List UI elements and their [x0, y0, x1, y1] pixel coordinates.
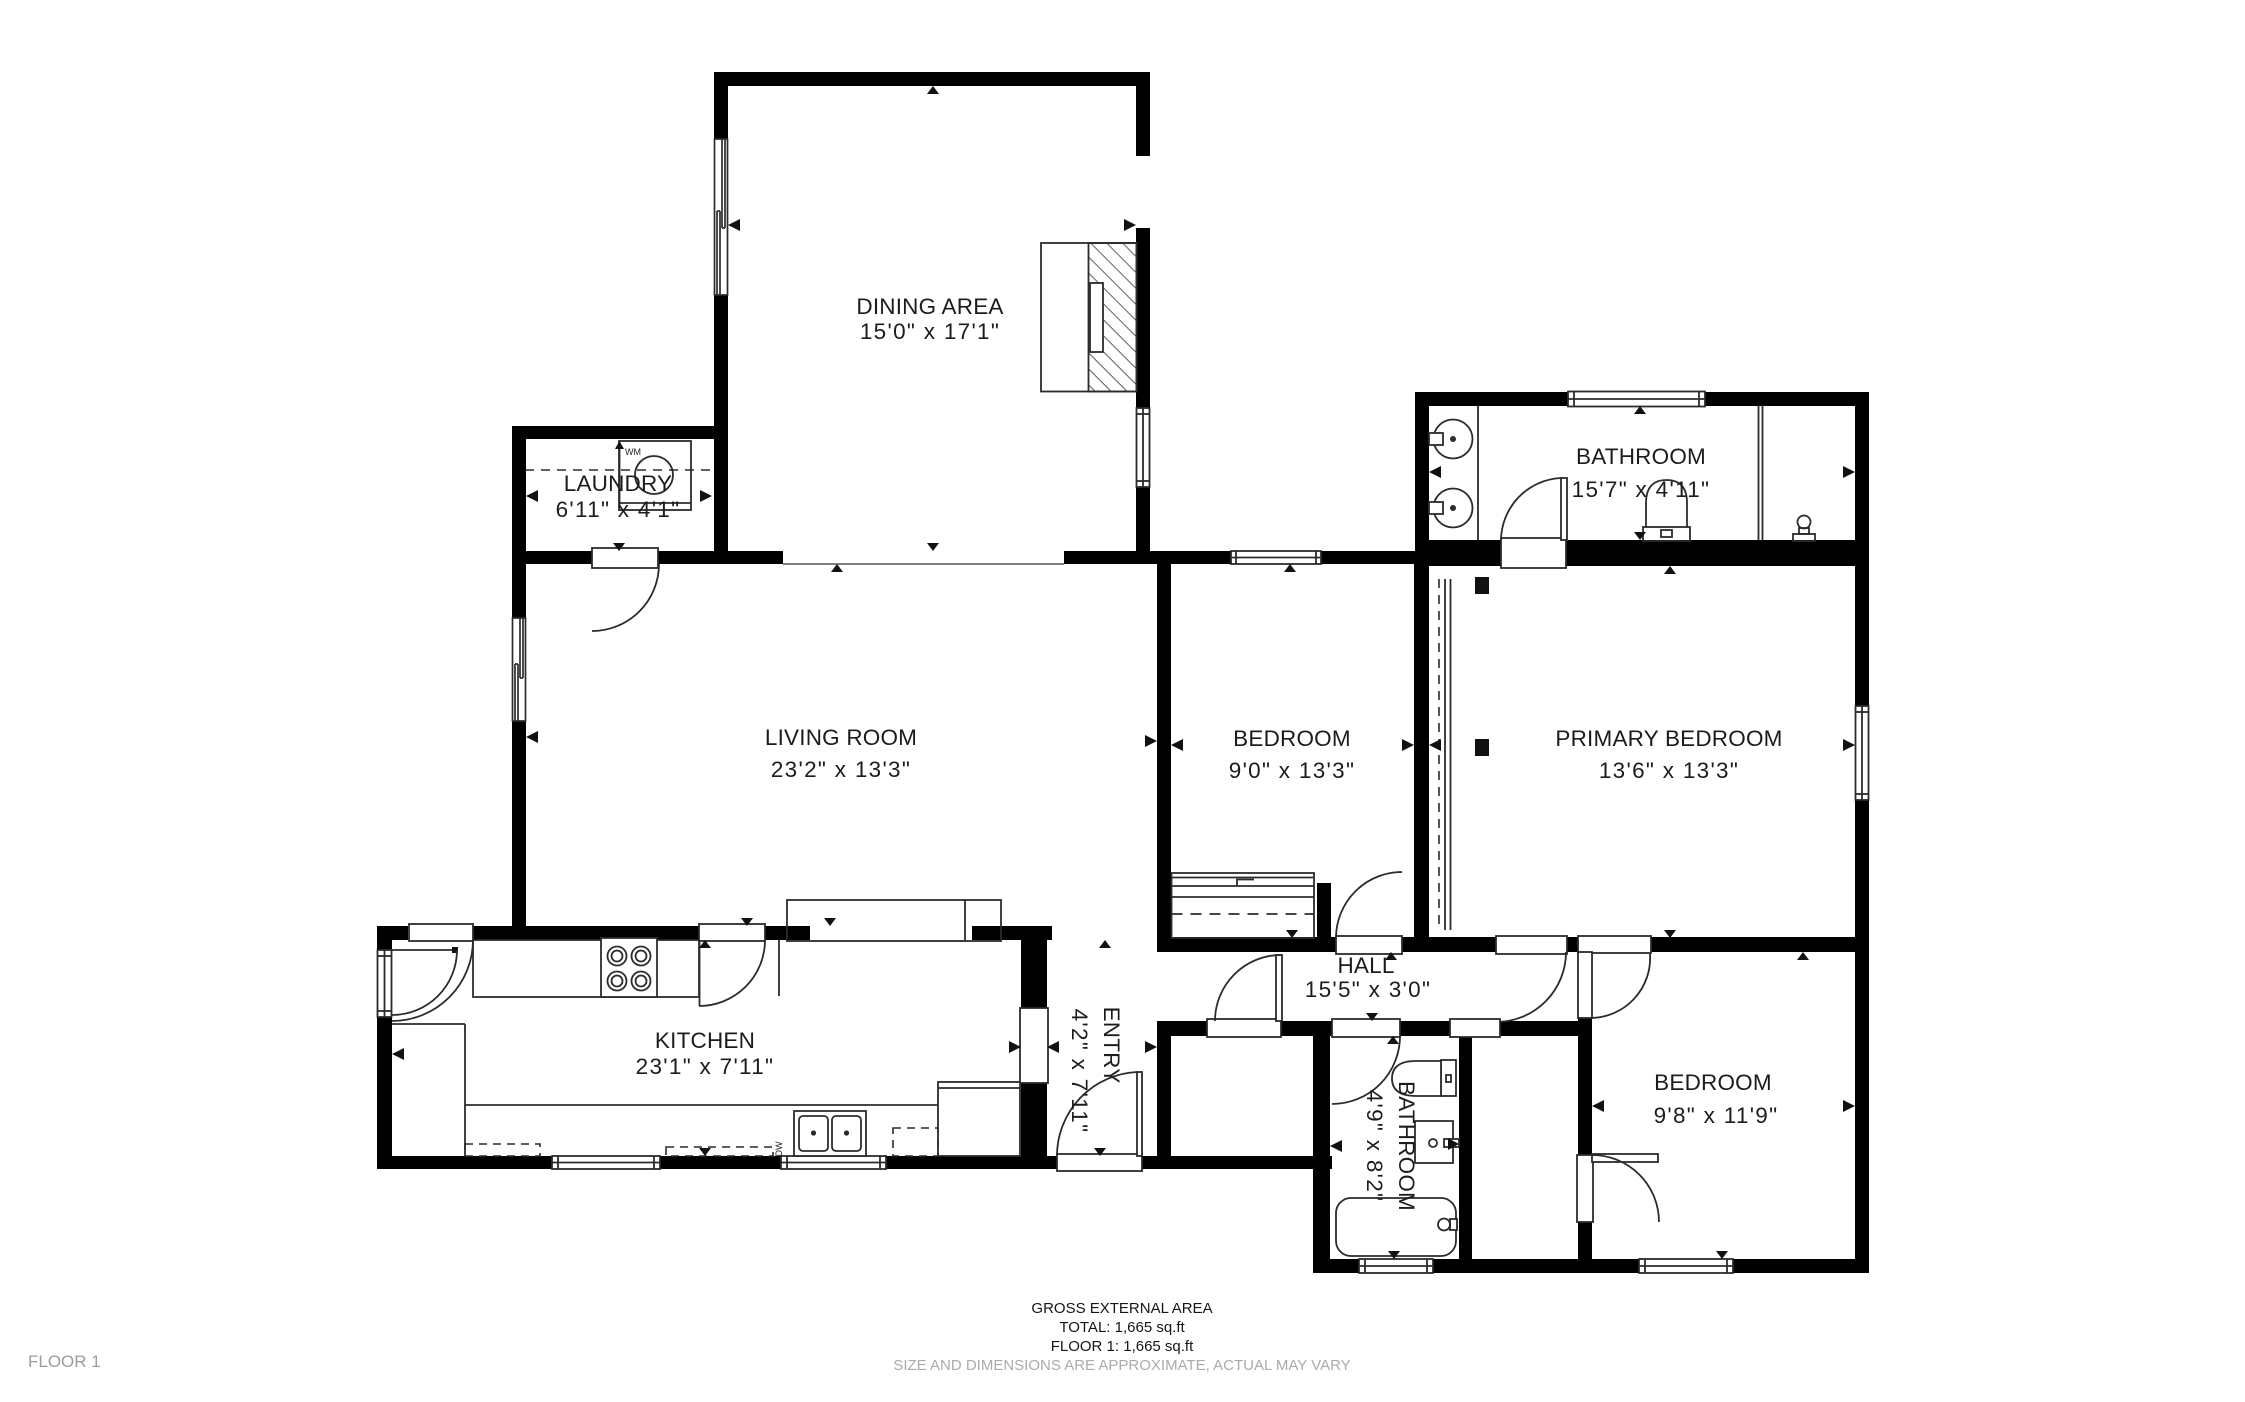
svg-text:SIZE AND DIMENSIONS ARE APPROX: SIZE AND DIMENSIONS ARE APPROXIMATE, ACT…	[893, 1357, 1350, 1374]
svg-text:4'9" x 8'2": 4'9" x 8'2"	[1362, 1090, 1387, 1203]
svg-text:FLOOR 1: 1,665 sq.ft: FLOOR 1: 1,665 sq.ft	[1051, 1338, 1194, 1355]
svg-text:23'2" x 13'3": 23'2" x 13'3"	[771, 757, 911, 782]
svg-text:DINING AREA: DINING AREA	[856, 294, 1003, 319]
svg-text:LAUNDRY: LAUNDRY	[564, 471, 673, 496]
svg-text:BATHROOM: BATHROOM	[1394, 1081, 1419, 1211]
svg-text:23'1" x 7'11": 23'1" x 7'11"	[636, 1054, 775, 1079]
svg-text:KITCHEN: KITCHEN	[655, 1028, 755, 1053]
svg-text:4'2" x 7'11": 4'2" x 7'11"	[1067, 1009, 1092, 1134]
svg-text:15'7" x 4'11": 15'7" x 4'11"	[1572, 477, 1711, 502]
svg-text:BATHROOM: BATHROOM	[1576, 444, 1706, 469]
svg-text:FLOOR 1: FLOOR 1	[28, 1352, 101, 1371]
svg-text:LIVING ROOM: LIVING ROOM	[765, 725, 917, 750]
svg-text:HALL: HALL	[1337, 953, 1394, 978]
svg-text:DW: DW	[774, 1141, 784, 1156]
svg-text:9'8" x 11'9": 9'8" x 11'9"	[1654, 1103, 1779, 1128]
svg-text:6'11" x 4'1": 6'11" x 4'1"	[556, 497, 681, 522]
svg-text:BEDROOM: BEDROOM	[1654, 1070, 1772, 1095]
svg-text:15'0" x 17'1": 15'0" x 17'1"	[860, 319, 1000, 344]
svg-text:13'6" x 13'3": 13'6" x 13'3"	[1599, 758, 1739, 783]
svg-text:BEDROOM: BEDROOM	[1233, 726, 1351, 751]
svg-text:WM: WM	[625, 447, 641, 457]
svg-text:GROSS EXTERNAL AREA: GROSS EXTERNAL AREA	[1031, 1300, 1212, 1317]
svg-text:9'0" x 13'3": 9'0" x 13'3"	[1229, 758, 1356, 783]
svg-text:PRIMARY BEDROOM: PRIMARY BEDROOM	[1555, 726, 1782, 751]
svg-text:TOTAL: 1,665 sq.ft: TOTAL: 1,665 sq.ft	[1059, 1319, 1185, 1336]
svg-text:ENTRY: ENTRY	[1099, 1007, 1124, 1084]
svg-text:15'5" x 3'0": 15'5" x 3'0"	[1305, 977, 1432, 1002]
